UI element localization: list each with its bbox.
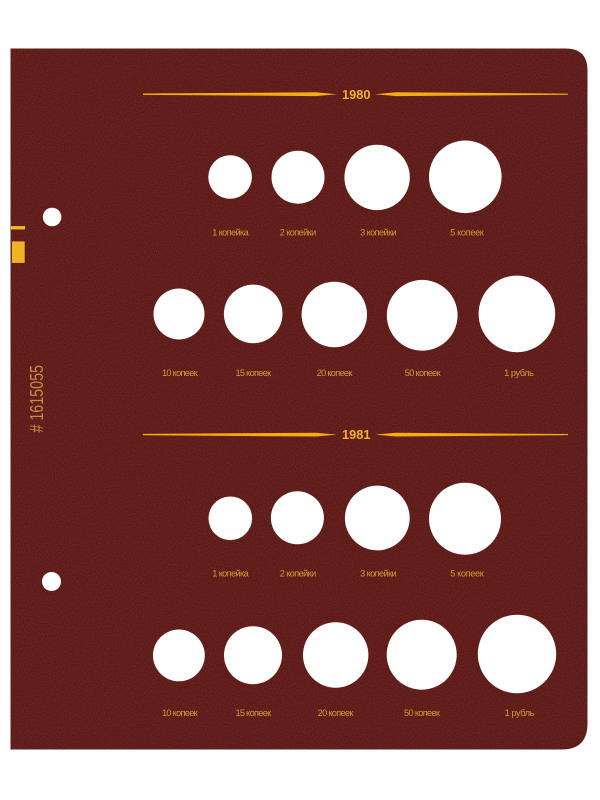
svg-text:1 копейка: 1 копейка [212,228,249,238]
svg-text:1 рубль: 1 рубль [504,368,534,378]
svg-text:15 копеек: 15 копеек [235,368,272,378]
svg-text:50 копеек: 50 копеек [405,368,442,378]
svg-text:3 копейки: 3 копейки [360,569,397,579]
svg-text:2 копейки: 2 копейки [280,228,317,238]
svg-text:1 рубль: 1 рубль [505,708,535,718]
svg-text:3 копейки: 3 копейки [360,228,397,238]
svg-text:1 копейка: 1 копейка [212,569,249,579]
svg-text:20 копеек: 20 копеек [318,708,355,718]
svg-text:2 копейки: 2 копейки [280,569,317,579]
svg-text:10 копеек: 10 копеек [162,368,199,378]
svg-text:1981: 1981 [342,427,371,442]
svg-text:15 копеек: 15 копеек [235,708,272,718]
svg-text:20 копеек: 20 копеек [317,368,354,378]
svg-text:5 копеек: 5 копеек [450,569,484,579]
svg-text:5 копеек: 5 копеек [450,228,484,238]
svg-text:# 1615055: # 1615055 [26,365,47,433]
svg-text:50 копеек: 50 копеек [404,708,441,718]
svg-text:10 копеек: 10 копеек [162,708,199,718]
svg-text:1980: 1980 [342,87,371,102]
